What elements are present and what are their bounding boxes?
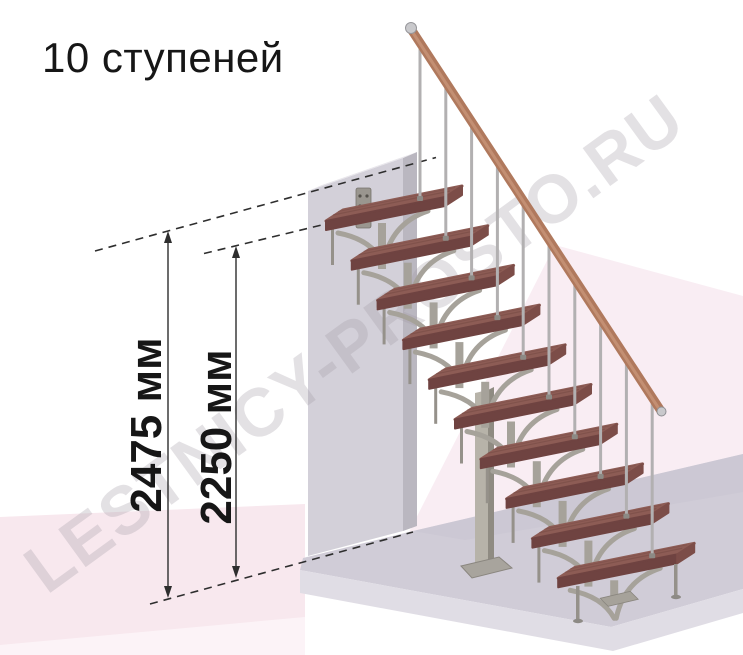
diagram-canvas: LESTNICY-PROSTO.RU 10 ступеней 2475 мм 2… [0,0,743,655]
floor-post [576,586,580,620]
baluster-base [520,355,526,360]
front-post [512,507,515,543]
baluster [496,158,499,319]
dimension-label-total-height: 2475 мм [122,337,172,512]
baluster-base [546,395,552,400]
front-post [537,547,540,583]
bracket-hole [365,194,368,197]
baluster [599,316,602,478]
staircase-diagram: LESTNICY-PROSTO.RU [0,0,743,655]
baluster-base [417,196,423,201]
baluster [573,277,576,439]
front-post [460,428,463,464]
baluster-base [469,275,475,280]
handrail-end-cap [657,407,666,416]
baluster-base [623,514,629,519]
baluster-base [572,434,578,439]
support-post [610,580,618,596]
front-post [331,229,334,265]
front-post [383,308,386,344]
baluster-base [598,474,604,479]
front-post [408,348,411,384]
baluster-base [494,315,500,320]
baluster-base [443,236,449,241]
front-post [486,467,489,503]
floor-post [674,564,678,596]
baluster [419,39,422,200]
front-post [434,388,437,424]
dimension-label-top-step: 2250 мм [192,349,242,524]
baluster [548,237,551,399]
floor-post-base [573,619,583,623]
baluster [651,395,654,557]
floor-post-base [671,595,681,599]
baluster [470,118,473,279]
diagram-title: 10 ступеней [42,34,284,82]
baluster [625,356,628,518]
baluster [444,78,447,239]
baluster-base [649,553,655,558]
front-post [357,269,360,305]
bracket-hole [358,194,361,197]
baluster [522,197,525,359]
handrail-top-cap [406,23,417,34]
